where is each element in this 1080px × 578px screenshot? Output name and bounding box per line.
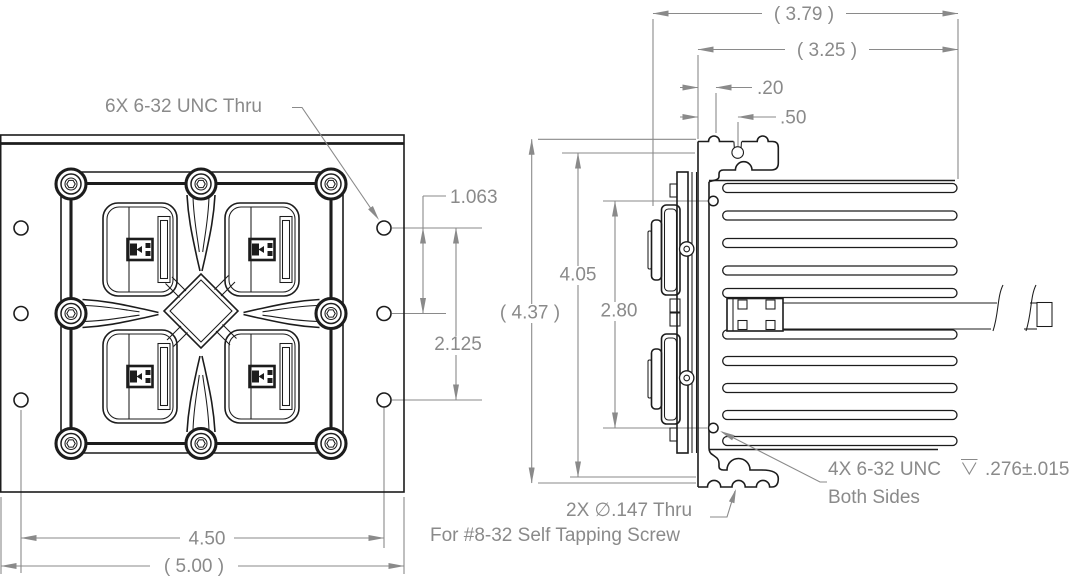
dim-hole-row-spacing: 1.063: [423, 187, 498, 314]
callout-2x-line2: For #8-32 Self Tapping Screw: [430, 525, 680, 546]
front-extension-lines: [1, 228, 482, 574]
led-module-bottom-right: [225, 330, 299, 423]
led-modules: [103, 203, 299, 423]
engineering-drawing-page: 1.063 2.125 4.50 ( 5.00 ): [0, 0, 1080, 578]
dim-text-450: 4.50: [189, 529, 226, 550]
dim-text-50: .50: [780, 108, 806, 129]
dim-text-325: ( 3.25 ): [797, 40, 857, 61]
module-holder-plate: [56, 169, 346, 459]
drawing-svg: 1.063 2.125 4.50 ( 5.00 ): [0, 0, 1080, 578]
center-web: [83, 195, 320, 432]
callout-6x-holes: 6X 6-32 UNC Thru: [105, 96, 379, 220]
dim-overall-width: ( 5.00 ): [1, 556, 404, 577]
callout-2x-line1: 2X ∅.147 Thru: [566, 500, 692, 521]
dim-slot-offset: .50: [680, 108, 806, 129]
bottom-mounting-flange: [698, 448, 778, 487]
tapped-hole-top: [709, 196, 719, 206]
dim-text-379: ( 3.79 ): [774, 4, 834, 25]
callout-4x-depth: .276±.015: [985, 459, 1069, 480]
dim-text-2125: 2.125: [434, 334, 482, 355]
tapped-hole-bottom: [709, 423, 719, 433]
cable-end: [1037, 303, 1052, 327]
cable-break-symbol-1: [993, 285, 1003, 331]
led-module-profile-top: [648, 205, 694, 295]
dim-text-20: .20: [757, 78, 783, 99]
dim-overall-depth: ( 3.79 ): [653, 4, 958, 25]
dim-side-hole-spacing: 2.80: [593, 201, 646, 428]
front-view: 1.063 2.125 4.50 ( 5.00 ): [1, 96, 498, 577]
callout-6x-text: 6X 6-32 UNC Thru: [105, 96, 262, 117]
screw-bosses: [56, 169, 346, 459]
dim-base-thickness: .20: [680, 78, 783, 99]
led-module-profile-bottom: [648, 334, 694, 424]
dim-hole-column-span: 4.50: [21, 528, 384, 550]
dim-text-1063: 1.063: [450, 187, 498, 208]
depth-symbol-icon: [961, 460, 978, 475]
callout-4x-note: Both Sides: [828, 487, 920, 508]
dim-text-437: ( 4.37 ): [500, 303, 560, 324]
callout-2x-thru: 2X ∅.147 Thru For #8-32 Self Tapping Scr…: [430, 489, 736, 546]
dim-fin-depth: ( 3.25 ): [698, 40, 958, 61]
dim-overall-height: ( 4.37 ): [494, 139, 567, 483]
side-view: ( 3.79 ) ( 3.25 ) .20 .50 ( 4.37 ): [430, 4, 1069, 546]
led-module-top-right: [225, 203, 299, 296]
cable-break-symbol-2: [1026, 285, 1036, 331]
led-module-bottom-left: [103, 330, 177, 423]
module-holder-profile: [670, 172, 697, 453]
dim-text-500: ( 5.00 ): [164, 556, 224, 577]
dim-text-280: 2.80: [601, 301, 638, 322]
callout-4x-spec: 4X 6-32 UNC: [828, 459, 941, 480]
heatsink-profile: [648, 136, 1052, 487]
dim-text-405: 4.05: [560, 265, 597, 286]
led-module-top-left: [103, 203, 177, 296]
